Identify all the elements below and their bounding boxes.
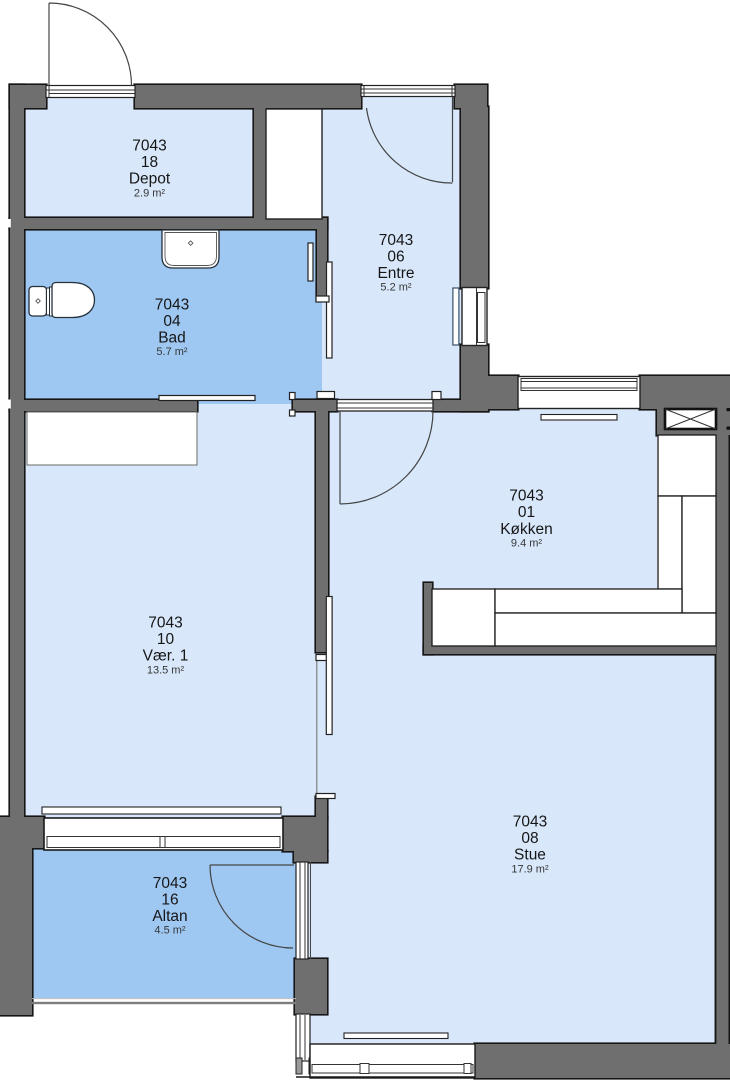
svg-text:Bad: Bad xyxy=(158,330,186,347)
svg-text:5.7 m²: 5.7 m² xyxy=(156,346,188,358)
svg-text:10: 10 xyxy=(157,631,175,648)
svg-text:7043: 7043 xyxy=(155,297,189,314)
svg-text:Altan: Altan xyxy=(152,908,187,925)
svg-text:9.4 m²: 9.4 m² xyxy=(511,538,543,550)
svg-text:17.9 m²: 17.9 m² xyxy=(511,864,549,876)
svg-text:7043: 7043 xyxy=(132,138,166,155)
svg-text:18: 18 xyxy=(141,154,158,171)
svg-text:7043: 7043 xyxy=(509,488,543,505)
svg-text:08: 08 xyxy=(521,830,538,847)
svg-text:4.5 m²: 4.5 m² xyxy=(154,925,186,937)
svg-text:7043: 7043 xyxy=(513,814,547,831)
svg-text:Køkken: Køkken xyxy=(500,521,553,538)
svg-text:Vær. 1: Vær. 1 xyxy=(143,648,189,665)
svg-text:06: 06 xyxy=(387,249,404,266)
svg-text:16: 16 xyxy=(161,892,178,909)
svg-text:04: 04 xyxy=(163,313,181,330)
svg-text:7043: 7043 xyxy=(148,615,182,632)
svg-text:01: 01 xyxy=(518,504,535,521)
svg-text:2.9 m²: 2.9 m² xyxy=(134,188,166,200)
svg-text:13.5 m²: 13.5 m² xyxy=(147,665,185,677)
svg-text:7043: 7043 xyxy=(379,232,413,249)
svg-text:Depot: Depot xyxy=(129,171,171,188)
svg-text:7043: 7043 xyxy=(153,875,187,892)
svg-text:Stue: Stue xyxy=(514,847,546,864)
svg-text:5.2 m²: 5.2 m² xyxy=(380,282,412,294)
svg-text:Entre: Entre xyxy=(377,265,414,282)
